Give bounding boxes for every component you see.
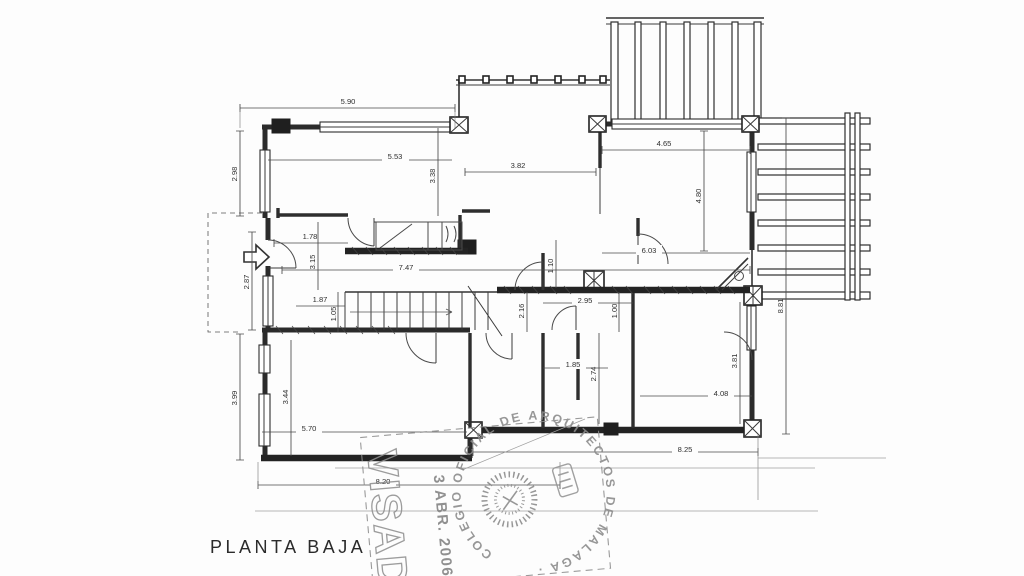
dim-label: 2.87 xyxy=(242,275,251,290)
dim-label: 2.98 xyxy=(230,167,239,182)
dim-label: 3.15 xyxy=(308,255,317,270)
dim-label: 3.38 xyxy=(428,169,437,184)
dim-label: 4.08 xyxy=(714,389,729,398)
plan-title: PLANTA BAJA xyxy=(210,537,366,557)
dim-label: 1.87 xyxy=(313,295,328,304)
dim-label: 2.16 xyxy=(517,304,526,319)
dim-label: 5.53 xyxy=(388,152,403,161)
pergola-top xyxy=(606,18,764,122)
dim-label: 3.82 xyxy=(511,161,526,170)
dim-label: 1.78 xyxy=(303,232,318,241)
stamp-date: 3 ABR. 2006 xyxy=(430,474,456,576)
dim-label: 3.81 xyxy=(730,354,739,369)
dim-label: 3.44 xyxy=(281,390,290,405)
furniture-bed xyxy=(376,222,462,250)
porch-dashed-outline xyxy=(208,213,262,332)
terrace-railing xyxy=(456,76,610,122)
visado-stamp: VISADO 3 ABR. 2006 COLEGIO OFICIAL DE AR… xyxy=(355,392,636,576)
dim-label: 8.81 xyxy=(776,299,785,314)
stamp-visado-text: VISADO xyxy=(358,448,420,576)
dim-label: 1.00 xyxy=(610,304,619,319)
dim-label: 2.74 xyxy=(589,367,598,382)
dim-label: 8.25 xyxy=(678,445,693,454)
dim-label: 5.90 xyxy=(341,97,356,106)
dim-label: 4.80 xyxy=(694,189,703,204)
stamp-emblem xyxy=(480,470,539,529)
dim-label: 4.65 xyxy=(657,139,672,148)
dim-label: 7.47 xyxy=(399,263,414,272)
dim-label: 6.03 xyxy=(642,246,657,255)
dim-label: 1.10 xyxy=(546,259,555,274)
dim-label: 2.95 xyxy=(578,296,593,305)
dim-label: 3.99 xyxy=(230,391,239,406)
floor-plan-drawing: 5.90 5.53 3.82 4.65 3.38 2.98 1.78 7.47 … xyxy=(0,0,1024,576)
floor-plan-sheet: 5.90 5.53 3.82 4.65 3.38 2.98 1.78 7.47 … xyxy=(0,0,1024,576)
dim-label: 5.70 xyxy=(302,424,317,433)
dim-label: 1.05 xyxy=(329,307,338,322)
entrance-arrow-icon xyxy=(244,245,269,269)
dim-label: 1.85 xyxy=(566,360,581,369)
pergola-right xyxy=(758,113,870,300)
